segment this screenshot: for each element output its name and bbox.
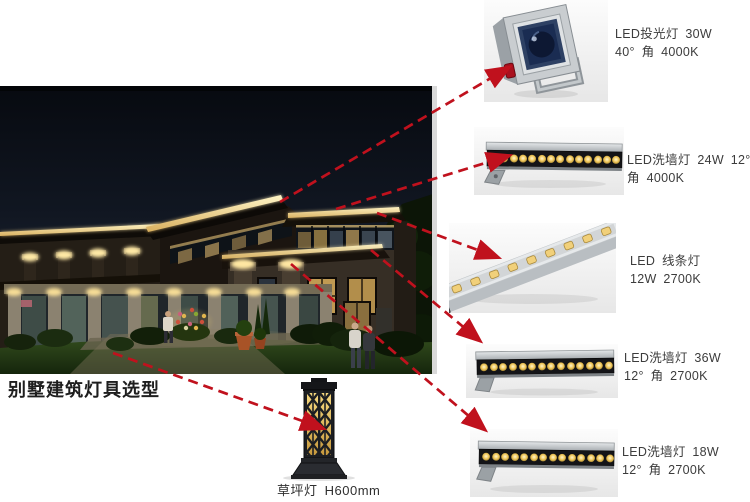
lawn-lamp-label: 草坪灯 H600mm [277, 482, 380, 501]
label-line1: LED洗墙灯 24W 12° [627, 151, 750, 169]
villa-night-rendering [0, 86, 433, 374]
led-linear-light-label: LED 线条灯 12W 2700K [630, 252, 701, 288]
label-line2: 角 4000K [627, 169, 750, 187]
label-line1: LED洗墙灯 18W [622, 443, 719, 461]
led-floodlight-label: LED投光灯 30W 40° 角 4000K [615, 25, 712, 61]
lawn-lamp-image [271, 377, 367, 481]
led-linear-light-image [449, 223, 616, 313]
label-line1: LED洗墙灯 36W [624, 349, 721, 367]
led-wall-washer-24w-label: LED洗墙灯 24W 12° 角 4000K [627, 151, 750, 187]
label-line2: 12° 角 2700K [624, 367, 721, 385]
led-wall-washer-18w-label: LED洗墙灯 18W 12° 角 2700K [622, 443, 719, 479]
lighting-selection-diagram: 别墅建筑灯具选型 [0, 0, 750, 502]
led-wall-washer-36w-image [466, 344, 618, 398]
label-line2: 12W 2700K [630, 270, 701, 288]
flower-bed [168, 308, 212, 341]
led-wall-washer-24w-image [474, 127, 624, 195]
label-line1: LED 线条灯 [630, 252, 701, 270]
label-line2: 40° 角 4000K [615, 43, 712, 61]
label-line1: LED投光灯 30W [615, 25, 712, 43]
led-floodlight-image [484, 0, 608, 102]
photo-edge-strip [432, 86, 437, 374]
led-wall-washer-36w-label: LED洗墙灯 36W 12° 角 2700K [624, 349, 721, 385]
led-wall-washer-18w-image [470, 429, 618, 497]
diagram-title: 别墅建筑灯具选型 [8, 376, 160, 402]
label-line2: 12° 角 2700K [622, 461, 719, 479]
